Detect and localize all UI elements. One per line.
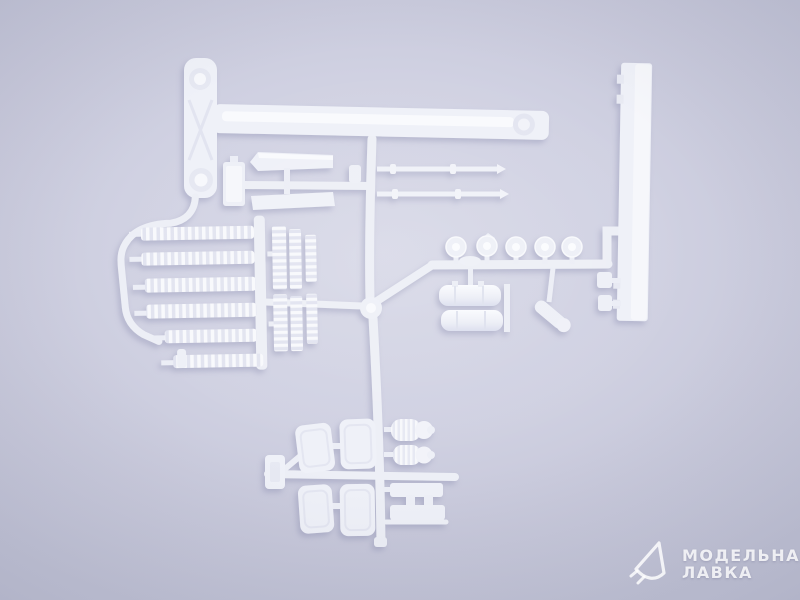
- ribbed-row: [165, 329, 257, 344]
- tool-box: [340, 484, 376, 537]
- corner-bracket: [265, 455, 285, 489]
- watermark-line1: МОДЕЛЬНАЯ: [682, 547, 800, 564]
- watermark-text: МОДЕЛЬНАЯ ЛАВКА: [682, 538, 800, 581]
- mudguard-lower: [251, 192, 335, 210]
- tool-box: [297, 484, 334, 534]
- small-bracket: [349, 165, 361, 183]
- radiator-box: [223, 156, 245, 206]
- watermark: МОДЕЛЬНАЯ ЛАВКА: [626, 538, 800, 586]
- ribbed-row: [141, 251, 254, 266]
- product-photo: МОДЕЛЬНАЯ ЛАВКА: [0, 0, 800, 600]
- leaf-spring-plate: [184, 58, 217, 198]
- ribbed-cluster: [120, 195, 319, 372]
- cluster-frame-runner: [120, 197, 198, 342]
- air-filters: [384, 419, 435, 465]
- step-frame: [383, 483, 445, 520]
- angled-cylinder: [532, 268, 573, 335]
- wheel-hub: [506, 237, 526, 264]
- tool-box: [294, 422, 336, 474]
- ribbed-row: [141, 226, 254, 241]
- fuel-tanks: [439, 268, 510, 332]
- paper-plane-logo-icon: [626, 538, 674, 586]
- ribbed-row: [146, 303, 256, 319]
- ladder-strips: [272, 226, 318, 352]
- ribbed-row: [173, 354, 263, 369]
- watermark-line2: ЛАВКА: [682, 564, 800, 581]
- chassis-beam: [213, 104, 550, 140]
- mudguard-upper: [250, 152, 333, 171]
- tool-box: [339, 418, 377, 469]
- axle-rods: [377, 164, 509, 199]
- mudguard-stub: [284, 168, 290, 194]
- sprue-illustration: [0, 0, 800, 600]
- sprue: [120, 58, 652, 547]
- ribbed-row: [145, 277, 256, 293]
- air-filter: [391, 419, 435, 441]
- cluster-runner: [254, 216, 268, 370]
- small-post: [177, 349, 186, 368]
- air-filter: [393, 445, 435, 465]
